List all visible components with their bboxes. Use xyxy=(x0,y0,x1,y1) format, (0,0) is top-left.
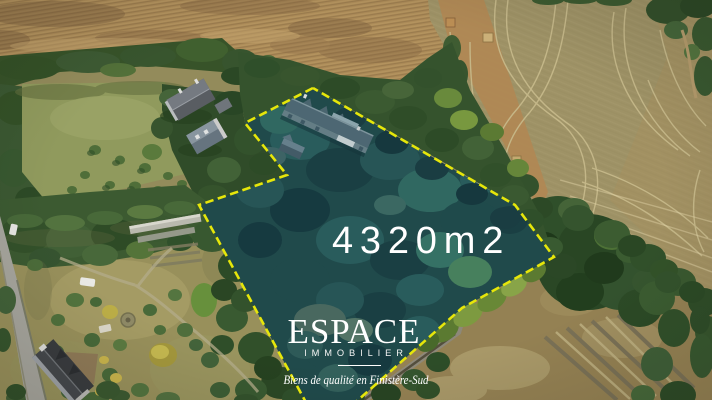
svg-text:Biens de qualité en Finistère-: Biens de qualité en Finistère-Sud xyxy=(284,373,430,387)
svg-text:IMMOBILIER: IMMOBILIER xyxy=(304,348,408,358)
svg-text:ESPACE: ESPACE xyxy=(287,312,420,351)
svg-text:4320m2: 4320m2 xyxy=(332,220,510,262)
